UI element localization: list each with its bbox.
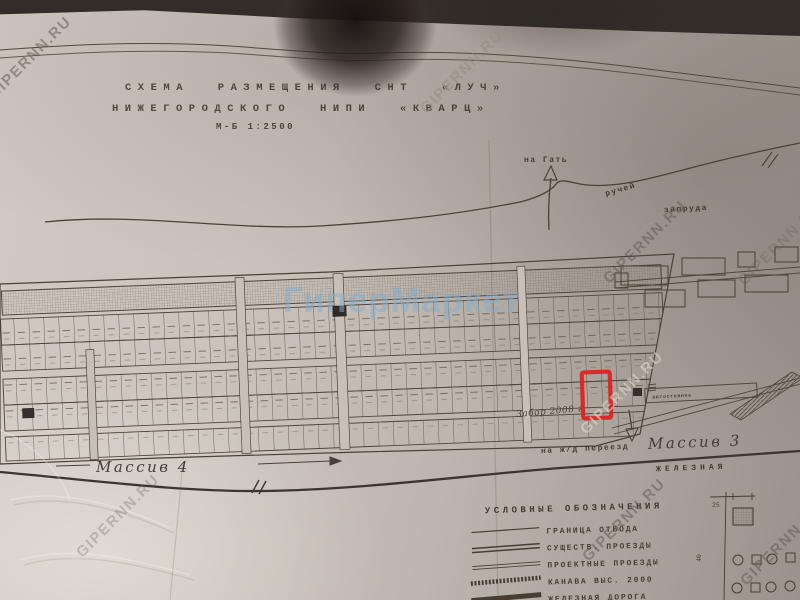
massiv4-arrow: [56, 457, 341, 466]
legend-item-existing-roads: СУЩЕСТВ. ПРОЕЗДЫ: [547, 542, 653, 554]
site-plan-drawing: автостоянка СХЕМА РАЗМЕЩЕНИЯ СНТ: [0, 0, 800, 600]
inset-detail: 25 40: [696, 492, 795, 600]
to-crossing-label: на ж/д переезд: [541, 442, 630, 456]
legend-item-planned-roads: ПРОЕКТНЫЕ ПРОЕЗДЫ: [547, 558, 659, 570]
top-boundary-lines: [0, 43, 800, 95]
railway-word: ЖЕЛЕЗНАЯ: [656, 463, 727, 474]
inset-dim-left: 40: [696, 554, 703, 562]
north-arrow-to-gat: [544, 166, 557, 230]
map-title-line1: СХЕМА РАЗМЕЩЕНИЯ СНТ «ЛУЧ»: [125, 82, 506, 94]
plot-grid: [0, 261, 668, 463]
legend-item-ditch: КАНАВА ВЫС. 2000: [548, 576, 654, 588]
inset-dim-top: 25: [712, 502, 720, 509]
massiv3-label: Массив 3: [647, 432, 742, 453]
railway-line: [0, 451, 800, 494]
to-gat-label: на Гать: [524, 156, 568, 165]
map-title-line2: НИЖЕГОРОДСКОГО НИПИ «КВАРЦ»: [112, 103, 490, 115]
map-scale: М-Б 1:2500: [216, 122, 295, 132]
title-block: СХЕМА РАЗМЕЩЕНИЯ СНТ «ЛУЧ» НИЖЕГОРОДСКОГ…: [112, 82, 506, 132]
massiv4-label: Массив 4: [95, 458, 190, 476]
legend-header: УСЛОВНЫЕ ОБОЗНАЧЕНИЯ: [485, 501, 663, 516]
parking-label: автостоянка: [652, 392, 692, 400]
stream-line: [45, 143, 800, 227]
photo-of-site-plan: автостоянка СХЕМА РАЗМЕЩЕНИЯ СНТ: [0, 0, 800, 600]
legend-item-boundary: ГРАНИЦА ОТВОДА: [546, 525, 639, 537]
pond-area-label: запруда: [664, 204, 709, 215]
legend-item-railway: ЖЕЛЕЗНАЯ ДОРОГА: [548, 593, 647, 600]
